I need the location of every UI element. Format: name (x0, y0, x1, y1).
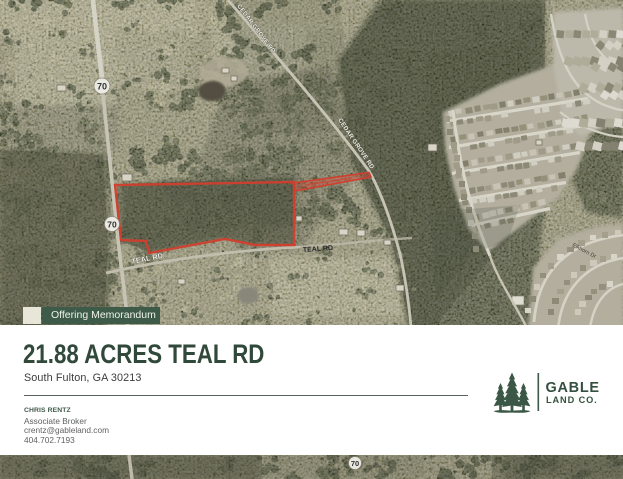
svg-text:GABLE: GABLE (546, 380, 600, 396)
svg-text:LAND CO.: LAND CO. (546, 395, 598, 405)
